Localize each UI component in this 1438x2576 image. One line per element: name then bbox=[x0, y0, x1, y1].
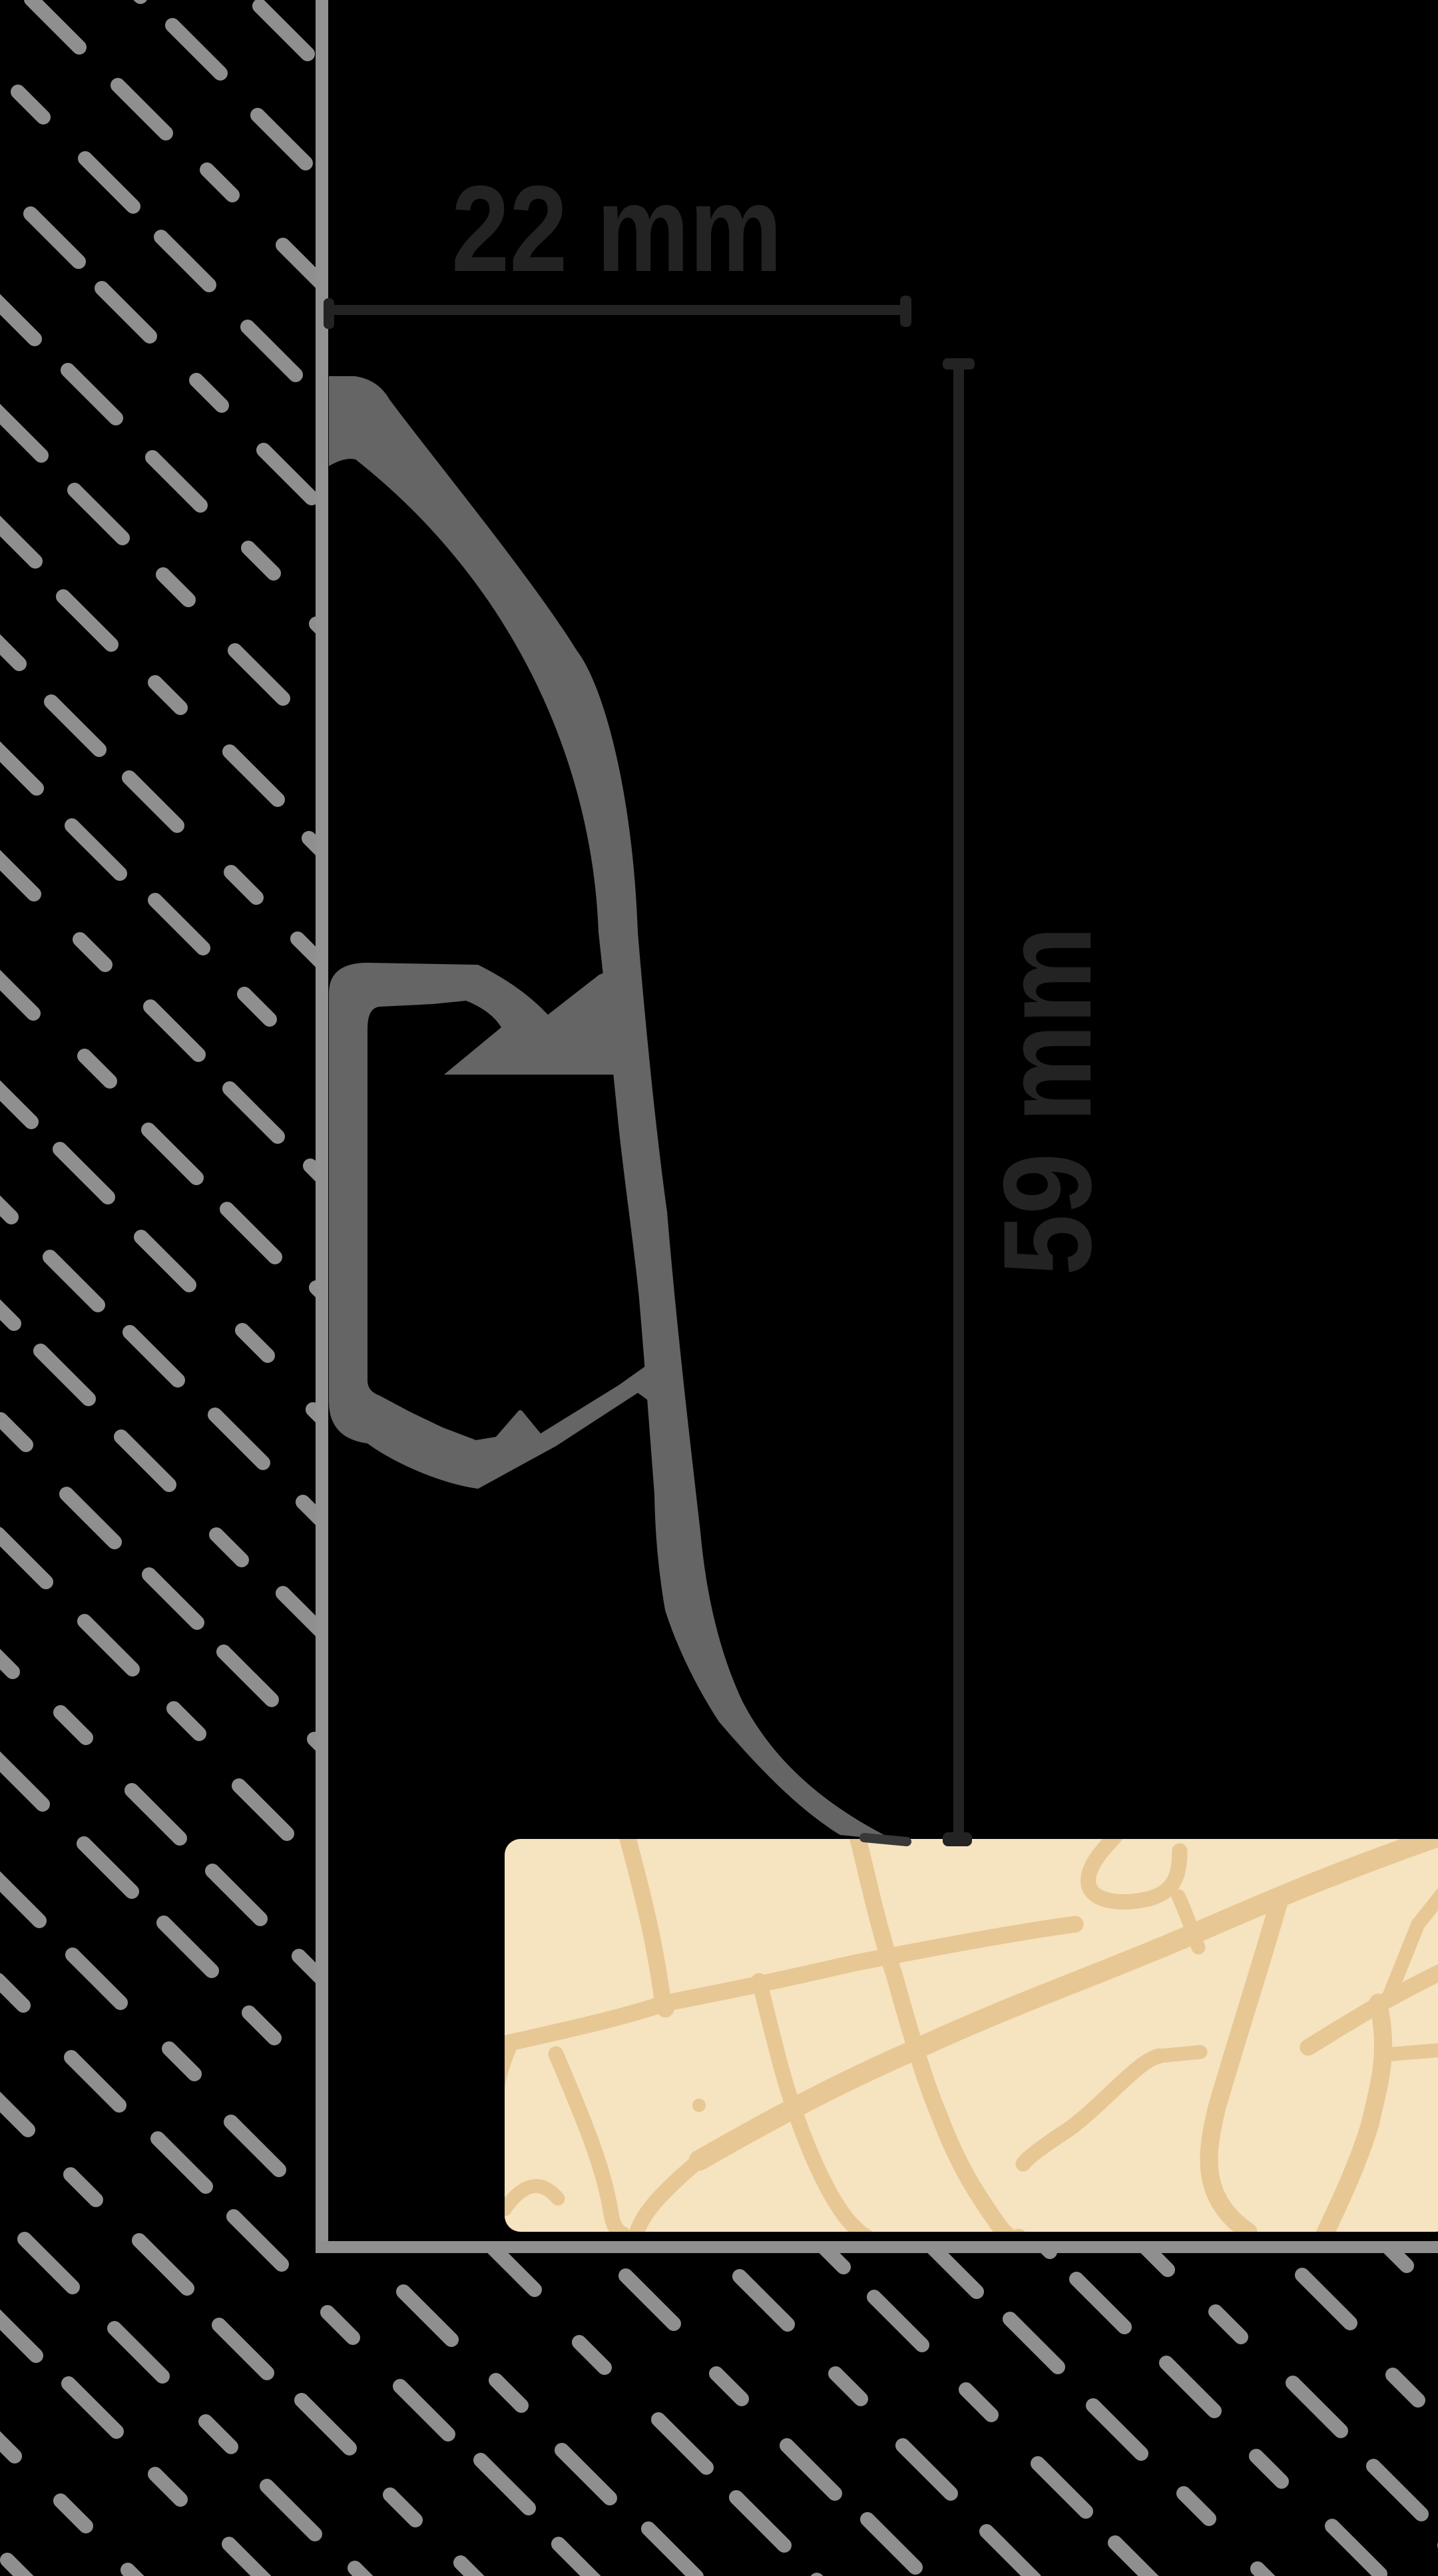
svg-text:59 mm: 59 mm bbox=[977, 926, 1117, 1276]
svg-text:22 mm: 22 mm bbox=[451, 160, 782, 297]
